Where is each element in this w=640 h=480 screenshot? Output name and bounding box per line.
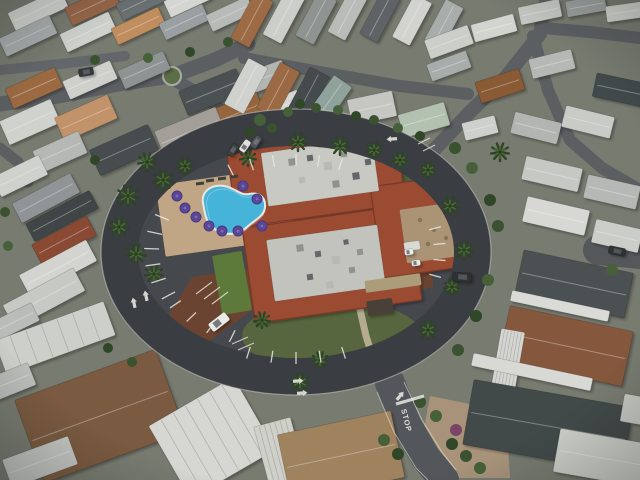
aerial-photo-canvas: STOP <box>0 0 640 480</box>
aerial-photo: STOP <box>0 0 640 480</box>
vignette-overlay <box>0 0 640 480</box>
